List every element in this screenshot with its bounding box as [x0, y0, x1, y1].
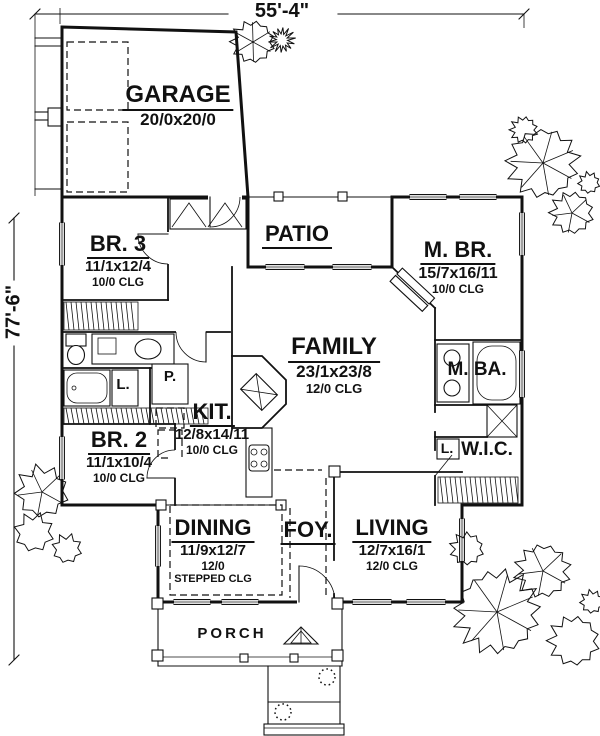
floor-plan: 55'-4" 77'-6" GARAGE 20/0x20/0 PATIO BR.… — [0, 0, 600, 736]
dimension-width-label: 55'-4" — [255, 0, 309, 23]
window — [519, 351, 526, 397]
window — [59, 223, 66, 265]
window — [519, 213, 526, 255]
dimension-height-label: 77'-6" — [3, 285, 26, 339]
closet-label-linen-wic: L. — [441, 440, 453, 458]
tree — [505, 130, 581, 198]
dimension-left — [9, 213, 19, 665]
window — [266, 264, 304, 271]
room-label-family: FAMILY 23/1x23/8 12/0 CLG — [288, 334, 380, 396]
window — [353, 599, 391, 606]
closet-label-linen-bath: L. — [116, 376, 129, 394]
room-label-dining: DINING 11/9x12/7 12/0 STEPPED CLG — [172, 516, 255, 585]
window — [407, 599, 445, 606]
tree — [454, 569, 540, 654]
room-label-living: LIVING 12/7x16/1 12/0 CLG — [352, 516, 431, 573]
tree — [549, 192, 594, 233]
window — [333, 264, 371, 271]
room-label-kit: KIT. 12/8x14/11 10/0 CLG — [175, 400, 249, 457]
room-label-garage: GARAGE 20/0x20/0 — [122, 82, 233, 130]
tree — [580, 590, 600, 614]
window — [460, 194, 496, 201]
tree — [14, 513, 53, 551]
room-label-patio: PATIO — [262, 222, 332, 249]
tree — [546, 617, 599, 665]
tree — [578, 172, 600, 194]
tree — [52, 534, 81, 563]
room-label-mba: M. BA. — [447, 360, 506, 381]
room-label-porch: PORCH — [197, 625, 266, 643]
window — [174, 599, 210, 606]
patio-posts — [248, 192, 392, 201]
window — [410, 194, 446, 201]
front-walk — [264, 666, 344, 735]
room-label-wic: W.I.C. — [461, 440, 513, 461]
window — [459, 519, 466, 561]
driveway — [35, 14, 63, 196]
room-label-mbr: M. BR. 15/7x16/11 10/0 CLG — [418, 238, 497, 296]
room-label-foy: FOY. — [281, 518, 336, 545]
window — [155, 526, 162, 566]
room-label-br2: BR. 2 11/1x10/4 10/0 CLG — [86, 428, 152, 485]
room-label-br3: BR. 3 11/1x12/4 10/0 CLG — [85, 232, 151, 289]
tree — [514, 545, 571, 597]
window — [59, 437, 66, 479]
closet-label-pantry: P. — [164, 368, 176, 386]
window — [222, 599, 258, 606]
